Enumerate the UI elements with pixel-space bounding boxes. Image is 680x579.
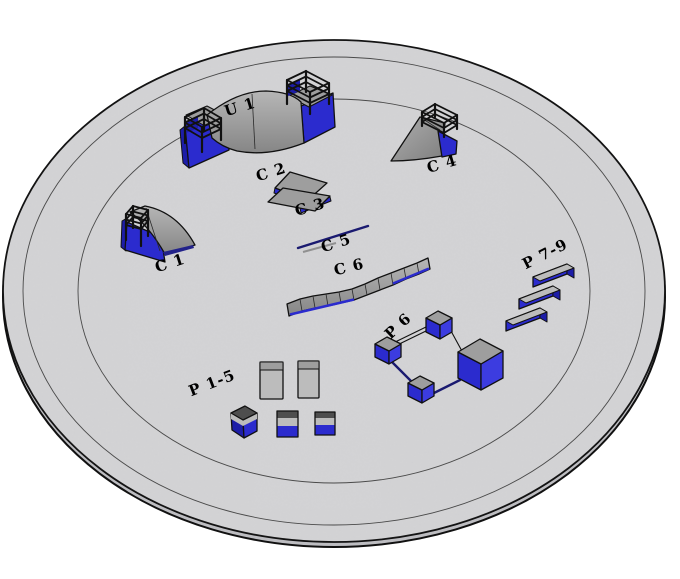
concrete-texture [0, 0, 680, 579]
skatepark-scene: U 1 C 4 C 1 [0, 0, 680, 579]
cube [315, 412, 335, 435]
tall-pad [260, 362, 283, 399]
skatepark-layout-canvas: U 1 C 4 C 1 [0, 0, 680, 579]
tall-pad [298, 361, 319, 398]
cube [277, 411, 298, 437]
ground-disc [0, 0, 680, 579]
